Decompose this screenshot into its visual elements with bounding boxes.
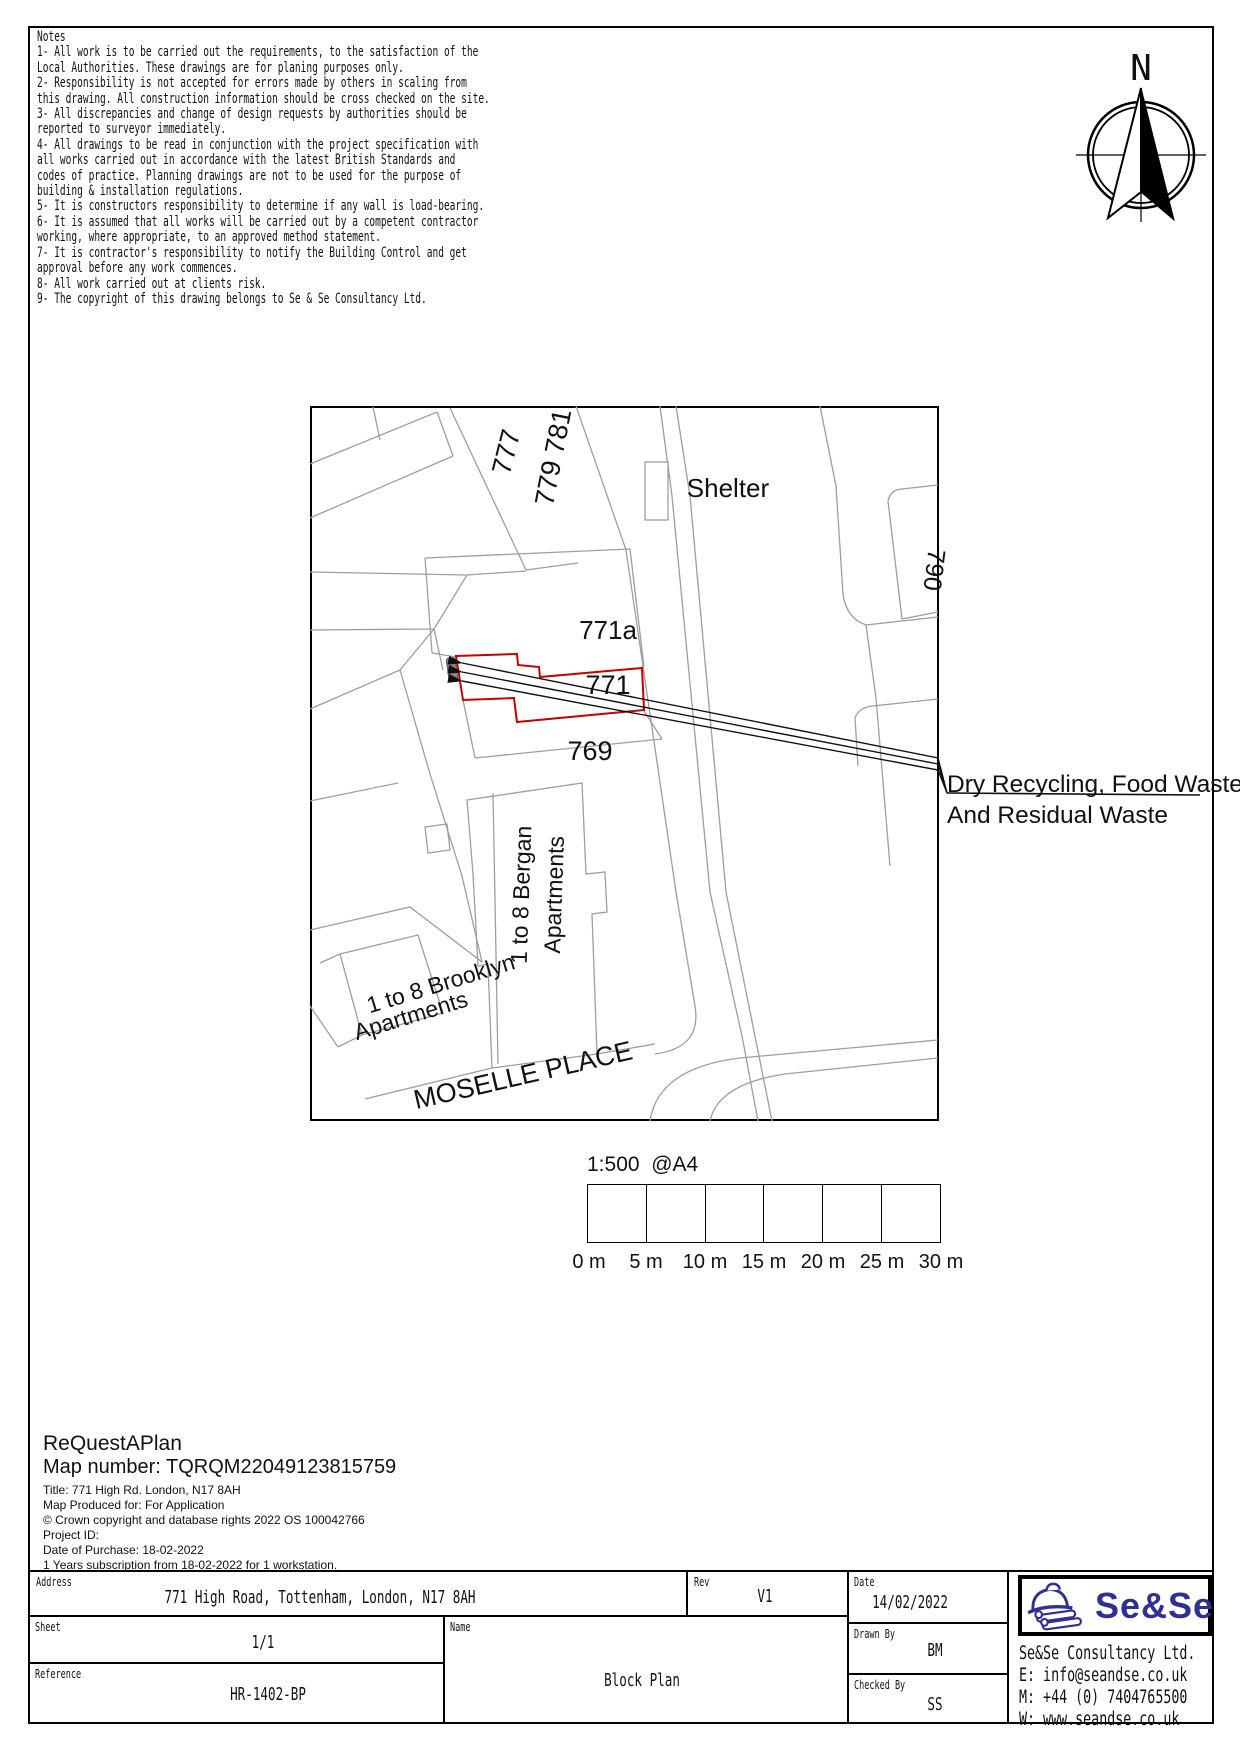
scale-tick: 20 m xyxy=(801,1251,845,1274)
scale-bar-segment xyxy=(706,1185,765,1242)
map-info-produced-for: Map Produced for: For Application xyxy=(43,1498,396,1513)
map-info-title: Title: 771 High Rd. London, N17 8AH xyxy=(43,1483,396,1498)
map-provider-name: ReQuestAPlan xyxy=(43,1432,396,1455)
name-value: Block Plan xyxy=(604,1670,680,1691)
notes-title: Notes xyxy=(37,30,459,45)
scale-tick: 15 m xyxy=(742,1251,786,1274)
notes-section: Notes 1- All work is to be carried out t… xyxy=(37,30,657,307)
hardhat-pipes-icon xyxy=(1025,1581,1087,1631)
company-name: Se&Se Consultancy Ltd. xyxy=(1019,1643,1195,1665)
map-info-project-id: Project ID: xyxy=(43,1528,396,1543)
checked-by-label: Checked By xyxy=(854,1678,905,1691)
notes-line: working, where appropriate, to an approv… xyxy=(37,230,459,245)
sheet-label: Sheet xyxy=(35,1620,61,1633)
building-label-771a: 771a xyxy=(579,615,637,645)
reference-label: Reference xyxy=(35,1667,81,1680)
company-logo-frame: Se&Se xyxy=(1018,1575,1212,1636)
scale-bar-segment xyxy=(764,1185,823,1242)
scale-bar-segment xyxy=(882,1185,940,1242)
notes-line: 2- Responsibility is not accepted for er… xyxy=(37,76,459,91)
map-number: Map number: TQRQM22049123815759 xyxy=(43,1455,396,1479)
drawn-by-label: Drawn By xyxy=(854,1627,895,1640)
reference-value: HR-1402-BP xyxy=(230,1684,306,1705)
map-info-copyright: © Crown copyright and database rights 20… xyxy=(43,1513,396,1528)
notes-line: building & installation regulations. xyxy=(37,184,459,199)
notes-line: reported to surveyor immediately. xyxy=(37,122,459,137)
company-mobile: M: +44 (0) 7404765500 xyxy=(1019,1687,1195,1709)
notes-line: 1- All work is to be carried out the req… xyxy=(37,45,459,60)
building-label-790: 790 xyxy=(918,548,951,593)
scale-tick: 0 m xyxy=(572,1251,605,1274)
scale-tick: 30 m xyxy=(919,1251,963,1274)
block-plan-page: { "notes": { "title": "Notes", "lines": … xyxy=(0,0,1240,1755)
waste-annotation-line1: Dry Recycling, Food Waste xyxy=(947,769,1240,800)
waste-annotation: Dry Recycling, Food Waste And Residual W… xyxy=(947,769,1240,831)
north-arrow-icon: N xyxy=(1076,40,1206,230)
block-plan-map: 777 779 781 Shelter 790 771a 771 769 1 t… xyxy=(310,406,1212,1121)
map-info-purchase-date: Date of Purchase: 18-02-2022 xyxy=(43,1543,396,1558)
notes-line: 8- All work carried out at clients risk. xyxy=(37,277,459,292)
scale-tick: 25 m xyxy=(860,1251,904,1274)
waste-annotation-line2: And Residual Waste xyxy=(947,800,1240,831)
shelter-outline xyxy=(645,462,668,520)
scale-tick: 10 m xyxy=(683,1251,727,1274)
notes-line: 3- All discrepancies and change of desig… xyxy=(37,107,459,122)
address-label: Address xyxy=(36,1575,72,1588)
shelter-label: Shelter xyxy=(687,473,770,503)
rev-label: Rev xyxy=(694,1575,709,1588)
notes-line: codes of practice. Planning drawings are… xyxy=(37,169,459,184)
notes-line: all works carried out in accordance with… xyxy=(37,153,459,168)
scale-tick: 5 m xyxy=(629,1251,662,1274)
title-block: Address 771 High Road, Tottenham, London… xyxy=(28,1570,1214,1724)
drawn-by-value: BM xyxy=(927,1640,942,1661)
building-label-769: 769 xyxy=(567,736,612,766)
address-value: 771 High Road, Tottenham, London, N17 8A… xyxy=(164,1587,475,1608)
map-info-section: ReQuestAPlan Map number: TQRQM2204912381… xyxy=(43,1432,396,1572)
date-value: 14/02/2022 xyxy=(872,1592,948,1613)
company-email: E: info@seandse.co.uk xyxy=(1019,1665,1195,1687)
name-label: Name xyxy=(450,1620,470,1633)
sheet-value: 1/1 xyxy=(252,1632,275,1653)
rev-value: V1 xyxy=(757,1586,772,1607)
checked-by-value: SS xyxy=(927,1694,942,1715)
scale-bar-segment xyxy=(647,1185,706,1242)
notes-line: Local Authorities. These drawings are fo… xyxy=(37,61,459,76)
notes-line: this drawing. All construction informati… xyxy=(37,92,459,107)
notes-line: 7- It is contractor's responsibility to … xyxy=(37,246,459,261)
notes-line: 5- It is constructors responsibility to … xyxy=(37,199,459,214)
sheet-cell xyxy=(30,1617,445,1664)
bergan-apartments-label-line1: 1 to 8 Bergan xyxy=(506,825,537,964)
scale-bar xyxy=(587,1184,941,1243)
scale-ratio-label: 1:500 @A4 xyxy=(587,1153,698,1177)
scale-bar-segment xyxy=(588,1185,647,1242)
date-label: Date xyxy=(854,1575,874,1588)
company-logo-text: Se&Se xyxy=(1095,1585,1214,1627)
north-label: N xyxy=(1130,48,1152,89)
building-label-771: 771 xyxy=(585,670,630,700)
notes-line: 9- The copyright of this drawing belongs… xyxy=(37,292,459,307)
bergan-apartments-label-line2: Apartments xyxy=(539,835,569,953)
company-web: W: www.seandse.co.uk xyxy=(1019,1709,1195,1731)
company-logo-cell: Se&Se Se&Se Consultancy Ltd. E: info@sea… xyxy=(1009,1572,1212,1722)
scale-bar-segment xyxy=(823,1185,882,1242)
notes-line: 6- It is assumed that all works will be … xyxy=(37,215,459,230)
notes-line: approval before any work commences. xyxy=(37,261,459,276)
notes-line: 4- All drawings to be read in conjunctio… xyxy=(37,138,459,153)
